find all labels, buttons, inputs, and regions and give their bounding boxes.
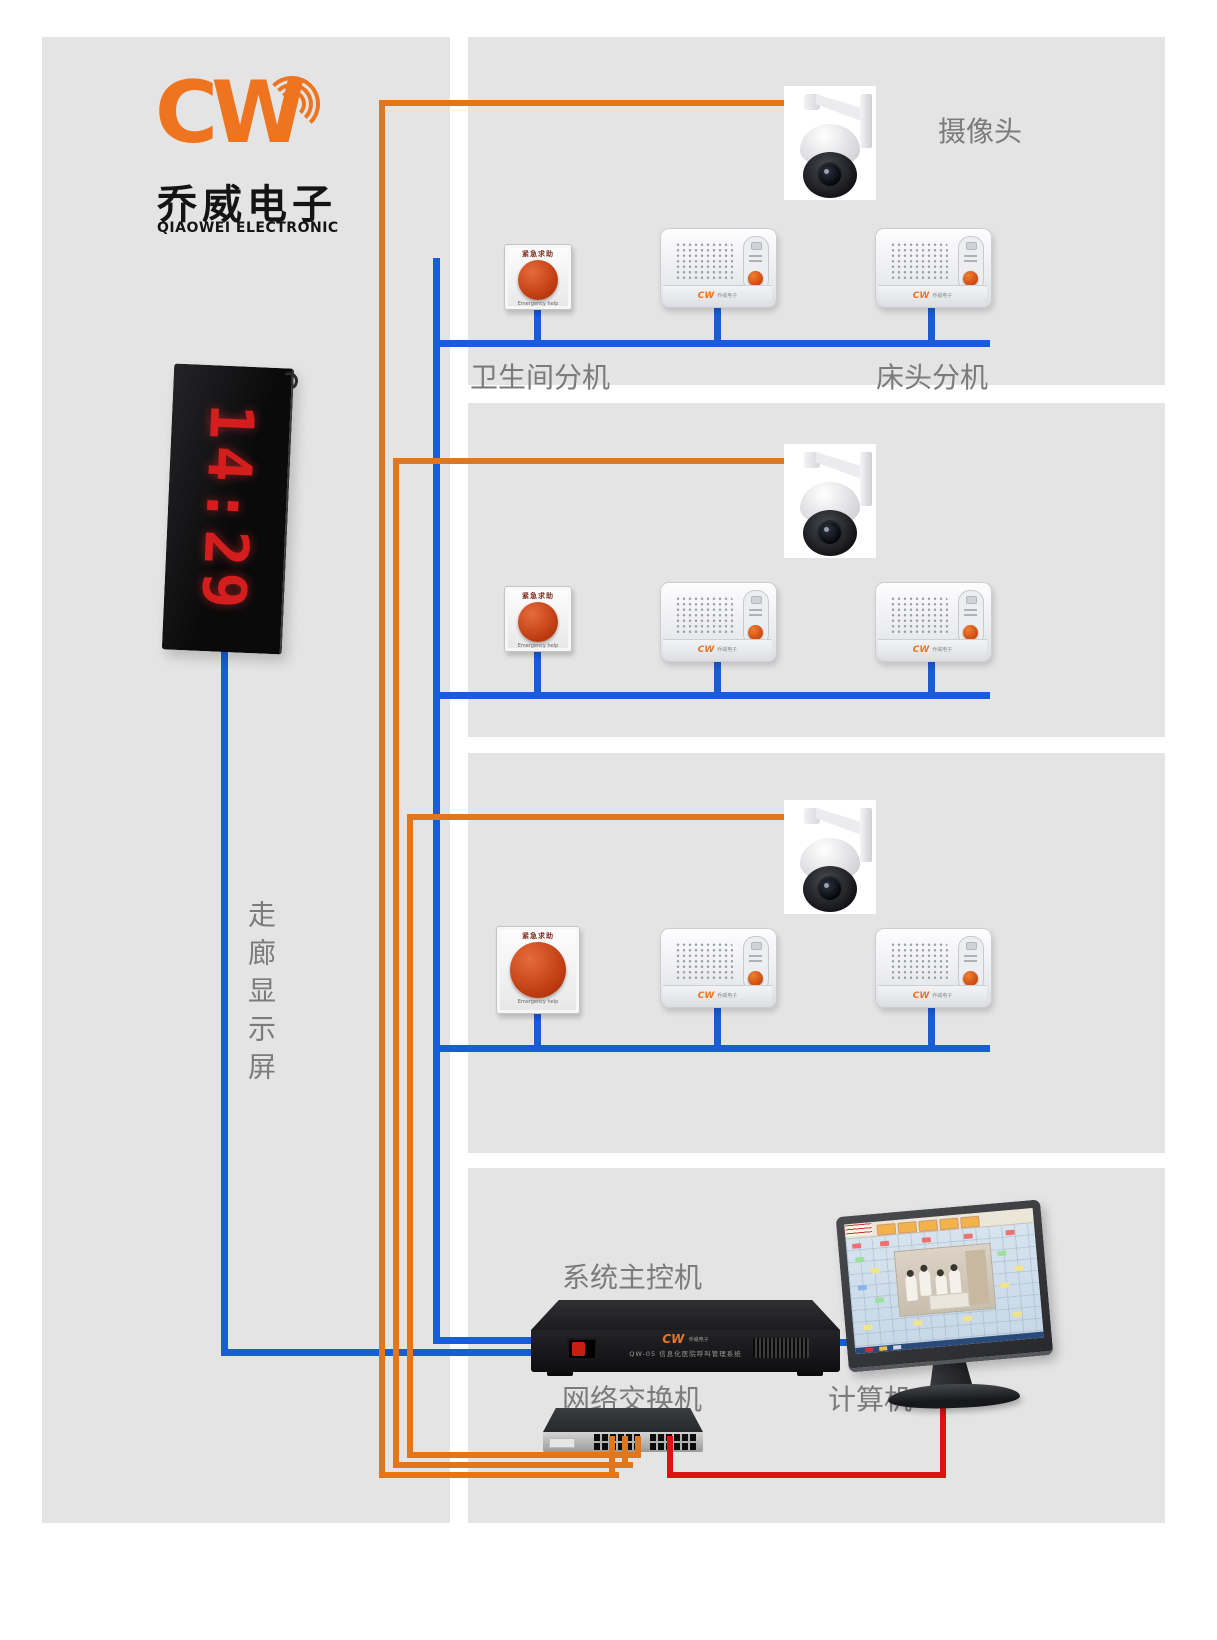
intercom-control-panel bbox=[958, 236, 984, 292]
wire-orange-camera2-horizontal bbox=[393, 458, 803, 464]
call-button-icon bbox=[963, 271, 978, 286]
intercom-control-panel bbox=[743, 936, 769, 992]
camera-bracket-arm-icon bbox=[816, 94, 862, 128]
wire-orange-camera1-vertical bbox=[379, 100, 385, 1478]
brand-text: 乔威电子 bbox=[932, 992, 952, 999]
company-name-en: QIAOWEI ELECTRONIC bbox=[157, 220, 339, 236]
status-chip bbox=[858, 1285, 867, 1291]
emergency-button-floor2: 紧急求助 Emergency help bbox=[504, 586, 572, 652]
wire-orange-camera3-port-stub bbox=[635, 1436, 641, 1458]
toolbar-button-icon bbox=[918, 1219, 938, 1232]
ethernet-ports-group1-icon bbox=[594, 1434, 640, 1450]
camera-lens-glint-icon bbox=[824, 169, 829, 174]
left-column-panel bbox=[42, 37, 450, 1523]
wire-orange-camera2-bottom bbox=[393, 1462, 633, 1468]
status-chip bbox=[880, 1241, 889, 1247]
camera-wall-plate-icon bbox=[860, 94, 872, 148]
camera-lens-icon bbox=[819, 522, 841, 544]
intercom-brand-strip: CW 乔威电子 bbox=[663, 285, 772, 305]
software-info-box bbox=[845, 1223, 872, 1236]
monitoring-photo-inset bbox=[895, 1244, 995, 1316]
emergency-button-subtitle: Emergency help bbox=[505, 301, 571, 307]
speaker-grille-icon bbox=[890, 242, 948, 282]
controller-label: 系统主控机 bbox=[562, 1256, 702, 1296]
status-chip bbox=[870, 1268, 879, 1274]
ptz-camera-floor2 bbox=[784, 444, 876, 558]
emergency-button-floor1: 紧急求助 Emergency help bbox=[504, 244, 572, 310]
intercom-brand-strip: CW 乔威电子 bbox=[878, 985, 987, 1005]
intercom-bed-station-floor3: CW 乔威电子 bbox=[875, 928, 992, 1008]
status-chip bbox=[963, 1316, 972, 1322]
camera-wall-plate-icon bbox=[860, 808, 872, 862]
wire-orange-camera1-horizontal bbox=[379, 100, 803, 106]
statusbar-chip bbox=[865, 1347, 873, 1352]
switch-sticker-icon bbox=[549, 1438, 575, 1448]
status-chip bbox=[1000, 1282, 1009, 1288]
emergency-red-button-icon bbox=[518, 602, 558, 642]
toolbar-button-icon bbox=[876, 1223, 896, 1236]
status-chip bbox=[855, 1257, 864, 1263]
emergency-red-button-icon bbox=[510, 942, 566, 998]
controller-foot-icon bbox=[797, 1372, 823, 1376]
patient-bed bbox=[929, 1292, 970, 1310]
wire-red-port-stub bbox=[667, 1436, 673, 1478]
camera-lens-glint-icon bbox=[824, 883, 829, 888]
status-chip bbox=[913, 1320, 922, 1326]
wire-blue-clock-vertical bbox=[221, 648, 228, 1356]
emergency-button-subtitle: Emergency help bbox=[497, 999, 579, 1005]
emergency-button-title: 紧急求助 bbox=[497, 931, 579, 941]
intercom-bed-station-floor2: CW 乔威电子 bbox=[875, 582, 992, 662]
brand-text: 乔威电子 bbox=[932, 646, 952, 653]
wire-blue-floor1-bus bbox=[433, 340, 990, 347]
brand-text: 乔威电子 bbox=[717, 992, 737, 999]
indicator-icon bbox=[751, 596, 762, 604]
ptz-camera-floor3 bbox=[784, 800, 876, 914]
call-button-icon bbox=[963, 971, 978, 986]
wire-orange-camera2-vertical bbox=[393, 458, 399, 1468]
corridor-led-display: 14:29 bbox=[162, 364, 294, 655]
wire-blue-bus-vertical bbox=[433, 258, 440, 1344]
toolbar-button-icon bbox=[897, 1221, 917, 1234]
indicator-icon bbox=[751, 242, 762, 250]
camera-wall-plate-icon bbox=[860, 452, 872, 506]
status-chip bbox=[922, 1237, 931, 1243]
bed-station-label: 床头分机 bbox=[876, 356, 988, 396]
camera-bracket-arm-icon bbox=[816, 452, 862, 486]
speaker-grille-icon bbox=[675, 596, 733, 636]
wire-orange-camera2-port-stub bbox=[622, 1436, 628, 1468]
emergency-button-subtitle: Emergency help bbox=[505, 643, 571, 649]
wire-drop-floor2-button bbox=[534, 644, 541, 699]
status-chip bbox=[863, 1324, 872, 1330]
camera-lens-glint-icon bbox=[824, 527, 829, 532]
switch-top-panel bbox=[543, 1408, 703, 1432]
label-lines-icon bbox=[964, 255, 977, 257]
intercom-brand-strip: CW 乔威电子 bbox=[878, 285, 987, 305]
wire-red-horizontal bbox=[667, 1472, 946, 1478]
indicator-icon bbox=[966, 942, 977, 950]
label-lines-icon bbox=[749, 955, 762, 957]
intercom-bed-station-floor1: CW 乔威电子 bbox=[875, 228, 992, 308]
wire-blue-floor3-bus bbox=[433, 1045, 990, 1052]
wire-orange-camera3-vertical bbox=[407, 814, 413, 1458]
wifi-arc-icon bbox=[264, 76, 320, 132]
camera-lens-icon bbox=[819, 878, 841, 900]
nurse-figure bbox=[919, 1269, 932, 1296]
label-lines-icon bbox=[964, 955, 977, 957]
led-time: 14:29 bbox=[187, 402, 266, 615]
intercom-control-panel bbox=[743, 236, 769, 292]
indicator-icon bbox=[751, 942, 762, 950]
monitor-screen bbox=[844, 1208, 1044, 1354]
wire-red-computer-vertical bbox=[940, 1402, 946, 1478]
corridor-display-label: 走廊显示屏 bbox=[240, 900, 280, 1090]
indicator-icon bbox=[966, 242, 977, 250]
intercom-brand-strip: CW 乔威电子 bbox=[663, 639, 772, 659]
cw-logo: CW bbox=[698, 645, 715, 655]
label-lines-icon bbox=[749, 609, 762, 611]
intercom-control-panel bbox=[743, 590, 769, 646]
status-chip bbox=[997, 1250, 1006, 1256]
toolbar-button-icon bbox=[939, 1218, 959, 1231]
emergency-button-title: 紧急求助 bbox=[505, 591, 571, 601]
indicator-icon bbox=[966, 596, 977, 604]
camera-lens-icon bbox=[819, 164, 841, 186]
status-chip bbox=[1005, 1230, 1014, 1236]
wire-orange-camera3-horizontal bbox=[407, 814, 803, 820]
toolbar-button-icon bbox=[960, 1216, 980, 1229]
intercom-brand-strip: CW 乔威电子 bbox=[878, 639, 987, 659]
call-button-icon bbox=[748, 271, 763, 286]
ethernet-ports-group2-icon bbox=[650, 1434, 696, 1450]
statusbar-chip bbox=[879, 1346, 887, 1351]
vent-grille-icon bbox=[753, 1338, 809, 1358]
label-lines-icon bbox=[749, 255, 762, 257]
company-logo: CW 乔威电子 QIAOWEI ELECTRONIC bbox=[155, 70, 385, 245]
ptz-camera-floor1 bbox=[784, 86, 876, 200]
brand-text: 乔威电子 bbox=[717, 292, 737, 299]
call-button-icon bbox=[963, 625, 978, 640]
cw-logo: CW bbox=[913, 645, 930, 655]
status-chip bbox=[1015, 1265, 1024, 1271]
intercom-control-panel bbox=[958, 936, 984, 992]
speaker-grille-icon bbox=[675, 242, 733, 282]
intercom-control-panel bbox=[958, 590, 984, 646]
intercom-toilet-station-floor2: CW 乔威电子 bbox=[660, 582, 777, 662]
status-chip bbox=[875, 1297, 884, 1303]
statusbar-chip bbox=[893, 1345, 901, 1350]
emergency-button-floor3: 紧急求助 Emergency help bbox=[496, 926, 580, 1014]
intercom-toilet-station-floor1: CW 乔威电子 bbox=[660, 228, 777, 308]
brand-text: 乔威电子 bbox=[717, 646, 737, 653]
call-button-icon bbox=[748, 625, 763, 640]
speaker-grille-icon bbox=[890, 596, 948, 636]
emergency-red-button-icon bbox=[518, 260, 558, 300]
cw-logo: CW bbox=[913, 991, 930, 1001]
cw-logo: CW bbox=[913, 291, 930, 301]
label-lines-icon bbox=[964, 609, 977, 611]
nurse-figure bbox=[905, 1274, 918, 1301]
intercom-brand-strip: CW 乔威电子 bbox=[663, 985, 772, 1005]
status-chip bbox=[964, 1233, 973, 1239]
speaker-grille-icon bbox=[675, 942, 733, 982]
camera-bracket-arm-icon bbox=[816, 808, 862, 842]
controller-top-panel bbox=[531, 1300, 840, 1330]
emergency-button-title: 紧急求助 bbox=[505, 249, 571, 259]
call-button-icon bbox=[748, 971, 763, 986]
wire-orange-camera1-port-stub bbox=[609, 1436, 615, 1478]
master-controller-unit: CW 乔威电子 QW-05 信息化医院呼叫管理系统 bbox=[531, 1300, 840, 1376]
speaker-grille-icon bbox=[890, 942, 948, 982]
system-diagram: CW 乔威电子 QIAOWEI ELECTRONIC 14:29 走廊显示屏 bbox=[0, 0, 1217, 1640]
cw-logo: CW bbox=[698, 291, 715, 301]
status-chip bbox=[852, 1243, 861, 1249]
wire-orange-camera1-bottom bbox=[379, 1472, 619, 1478]
computer-monitor bbox=[836, 1199, 1054, 1372]
camera-label: 摄像头 bbox=[938, 110, 1022, 150]
intercom-toilet-station-floor3: CW 乔威电子 bbox=[660, 928, 777, 1008]
toilet-station-label: 卫生间分机 bbox=[470, 356, 610, 396]
nurse-figure bbox=[949, 1269, 962, 1296]
controller-foot-icon bbox=[547, 1372, 573, 1376]
brand-text: 乔威电子 bbox=[932, 292, 952, 299]
status-chip bbox=[1013, 1311, 1022, 1317]
cw-logo: CW bbox=[698, 991, 715, 1001]
wire-blue-floor2-bus bbox=[433, 692, 990, 699]
